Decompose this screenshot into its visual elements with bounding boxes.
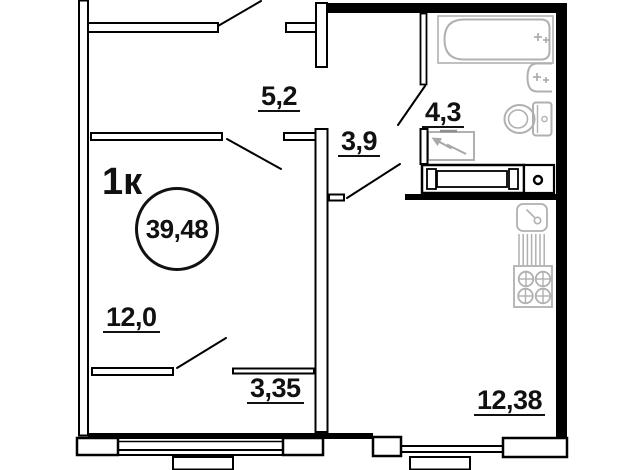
door-swings bbox=[177, 1, 425, 368]
riser-point-icon bbox=[534, 176, 542, 184]
room-label-hallway: 5,2 bbox=[258, 84, 300, 112]
stove-icon bbox=[514, 266, 552, 307]
floor-plan: 1к 39,48 5,2 4,3 3,9 12,0 3,35 12,38 bbox=[0, 0, 644, 470]
balcony-wall-left bbox=[92, 368, 173, 375]
room-label-kitchen: 12,38 bbox=[474, 388, 545, 416]
bathroom-door-swing bbox=[398, 86, 425, 125]
bathroom-partition-upper bbox=[421, 14, 427, 85]
built-in-unit bbox=[422, 165, 524, 193]
room-label-corridor: 3,9 bbox=[338, 129, 380, 157]
entry-stub-wall bbox=[286, 23, 317, 32]
dish-drainer bbox=[519, 234, 544, 265]
kitchen-window bbox=[373, 437, 567, 457]
kitchen-top-wall bbox=[405, 194, 556, 200]
living-room-door-swing bbox=[227, 139, 281, 169]
apartment-type-label: 1к bbox=[102, 166, 142, 198]
kitchen-window-sill bbox=[410, 457, 470, 470]
interior-walls bbox=[79, 1, 428, 436]
room-label-living-room: 12,0 bbox=[103, 305, 160, 333]
bathtub bbox=[438, 16, 553, 63]
electrical-panel-icon bbox=[428, 130, 474, 160]
balcony-window bbox=[77, 438, 323, 455]
bottom-wall bbox=[88, 433, 373, 439]
room-label-bathroom: 4,3 bbox=[422, 100, 464, 128]
room-top-wall bbox=[91, 133, 222, 140]
hall-corridor-wall-upper bbox=[316, 3, 327, 67]
right-wall bbox=[556, 3, 567, 440]
vent-shaft bbox=[524, 165, 554, 193]
kitchen-door-stub bbox=[329, 195, 344, 201]
balcony-sill bbox=[173, 457, 233, 470]
balcony-door-swing bbox=[177, 338, 226, 368]
room-label-balcony: 3,35 bbox=[247, 376, 304, 404]
total-area-badge: 39,48 bbox=[135, 187, 219, 271]
toilet bbox=[505, 103, 552, 136]
left-wall bbox=[79, 1, 88, 436]
entry-top-wall bbox=[88, 23, 218, 32]
basin-faucet-icon bbox=[533, 73, 549, 83]
wash-basin bbox=[528, 64, 553, 92]
floor-plan-drawing bbox=[0, 0, 644, 470]
entry-door-swing bbox=[218, 1, 261, 26]
bath-faucet-icon bbox=[534, 33, 549, 43]
total-area-value: 39,48 bbox=[146, 214, 209, 245]
room-top-wall-stub bbox=[284, 133, 316, 140]
kitchen-sink bbox=[517, 204, 547, 231]
bathroom-partition-lower bbox=[421, 129, 428, 164]
top-wall bbox=[327, 3, 567, 13]
central-vertical-wall bbox=[316, 129, 328, 432]
kitchen-door-swing bbox=[347, 164, 400, 198]
